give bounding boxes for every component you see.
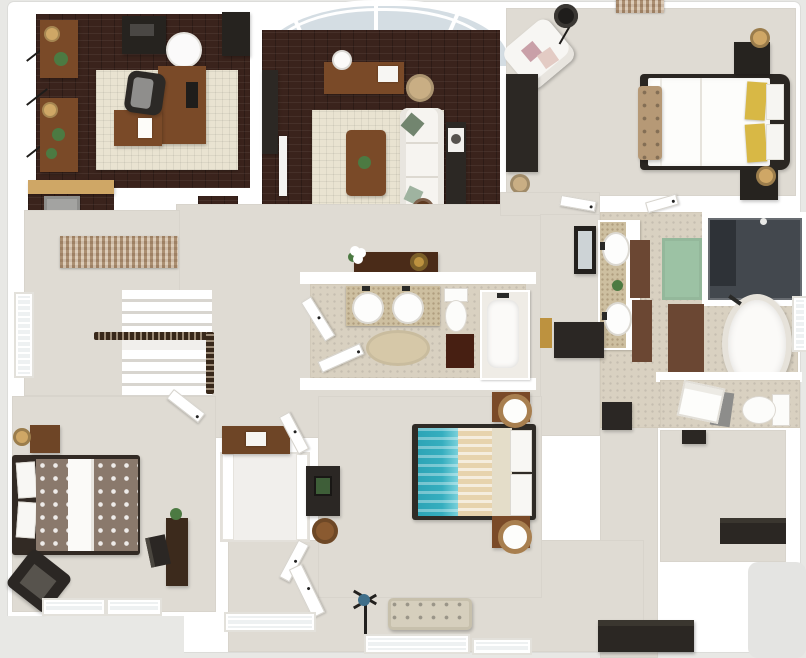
console-box xyxy=(378,66,398,82)
laundry-counter xyxy=(28,180,114,194)
storage-bench-a xyxy=(598,620,694,652)
shelf-lamp xyxy=(44,26,60,42)
framed-art xyxy=(314,476,332,496)
green-bath-mat xyxy=(662,238,702,300)
wall-tapestry xyxy=(616,0,664,13)
exterior-ground-bottom-left xyxy=(0,616,184,658)
bedroom-window xyxy=(106,598,162,616)
round-ottoman xyxy=(166,32,202,68)
orb-lamp xyxy=(498,520,532,554)
tan-striped-duvet xyxy=(458,428,492,516)
nightstand xyxy=(30,425,60,453)
floor-plan xyxy=(0,0,806,658)
printer xyxy=(130,24,154,36)
white-pillow xyxy=(766,84,784,120)
shower-glass-panel xyxy=(710,220,736,286)
study-desk-return xyxy=(158,66,206,144)
vanity-sink xyxy=(602,232,630,266)
faucet-icon xyxy=(600,242,605,250)
monitor xyxy=(186,82,198,108)
white-pillow xyxy=(510,430,532,472)
bedroom-window xyxy=(42,598,106,616)
vanity-sink xyxy=(604,302,632,336)
flower-vase xyxy=(350,246,360,256)
speaker-cabinet xyxy=(222,12,250,56)
orb-table-lamp xyxy=(332,50,352,70)
table-lamp xyxy=(756,166,776,186)
white-pillow xyxy=(16,461,37,498)
round-bath-rug xyxy=(366,330,430,366)
duvet-fold-line xyxy=(700,78,702,166)
speaker-cone-icon xyxy=(451,134,461,144)
coffee-table-plant xyxy=(358,156,371,169)
staircase-lower-flight xyxy=(122,350,212,396)
wc-toilet-bowl xyxy=(742,396,776,424)
stair-railing-horizontal xyxy=(94,332,214,340)
foyer-window xyxy=(472,638,532,655)
yellow-pillow xyxy=(745,123,768,162)
shower-head-icon xyxy=(760,218,767,225)
faucet-icon xyxy=(602,312,607,320)
radio xyxy=(246,432,266,446)
gold-bowl xyxy=(410,253,428,271)
beige-blanket xyxy=(492,428,512,516)
vanity-plant xyxy=(612,280,623,291)
orb-lamp xyxy=(498,394,532,428)
foot-bench xyxy=(638,86,662,160)
yellow-pillow xyxy=(745,81,768,120)
potted-plant xyxy=(54,52,68,66)
media-console xyxy=(262,70,278,154)
office-chair-back xyxy=(130,77,154,109)
white-pillow xyxy=(510,474,532,516)
arc-floor-lamp xyxy=(554,4,578,28)
tufted-bench xyxy=(388,598,472,630)
stair-railing-vertical xyxy=(206,332,214,394)
basket xyxy=(510,174,530,194)
dark-bath-mat xyxy=(446,334,474,368)
toilet-bowl xyxy=(445,300,467,332)
foyer-window xyxy=(224,612,316,632)
bed-sheet xyxy=(68,459,94,551)
stair-window xyxy=(14,292,34,378)
hamper xyxy=(554,322,604,358)
potted-plant xyxy=(46,148,57,159)
basket-pouf xyxy=(406,74,434,102)
coat-sculpture-stem xyxy=(364,602,367,636)
white-pillow xyxy=(16,501,37,538)
white-pillow xyxy=(766,124,784,160)
staircase-upper-flight xyxy=(122,290,212,334)
faucet-icon xyxy=(402,286,410,291)
master-dresser xyxy=(506,74,538,172)
vanity-sink xyxy=(392,292,424,324)
closet-shelf xyxy=(222,454,234,540)
bathroom-window xyxy=(792,296,806,352)
tree-pattern-duvet-right xyxy=(94,459,138,551)
shelf-lamp xyxy=(42,102,58,118)
tv-panel xyxy=(279,136,287,196)
sofa-cushion-line xyxy=(406,176,438,178)
table-lamp xyxy=(13,428,31,446)
brown-bath-mat xyxy=(668,304,704,378)
foyer-window xyxy=(364,634,470,654)
tub-faucet-icon xyxy=(497,293,509,298)
window-mullion xyxy=(374,2,378,32)
desk-papers xyxy=(138,118,152,138)
round-stool xyxy=(312,518,338,544)
closet-rod xyxy=(682,430,706,444)
garage-pad xyxy=(748,562,806,658)
bath-wall xyxy=(300,272,536,284)
teal-striped-duvet xyxy=(418,428,458,516)
coat-sculpture-accent xyxy=(358,594,370,606)
faucet-icon xyxy=(362,286,370,291)
vanity-sink xyxy=(352,292,384,324)
woven-runner-rug xyxy=(60,236,178,268)
table-lamp xyxy=(750,28,770,48)
tree-pattern-duvet-left xyxy=(36,459,68,551)
sofa-cushion-line xyxy=(406,142,438,144)
gold-towel xyxy=(540,318,552,348)
bathtub-basin xyxy=(487,300,519,368)
writing-desk xyxy=(166,518,188,586)
runner-rug xyxy=(630,240,650,298)
desk-plant xyxy=(170,508,182,520)
mirror-glass xyxy=(578,231,592,269)
runner-rug xyxy=(632,300,652,362)
hall-bench xyxy=(602,402,632,430)
storage-bench-b xyxy=(720,518,786,544)
potted-plant xyxy=(52,128,65,141)
